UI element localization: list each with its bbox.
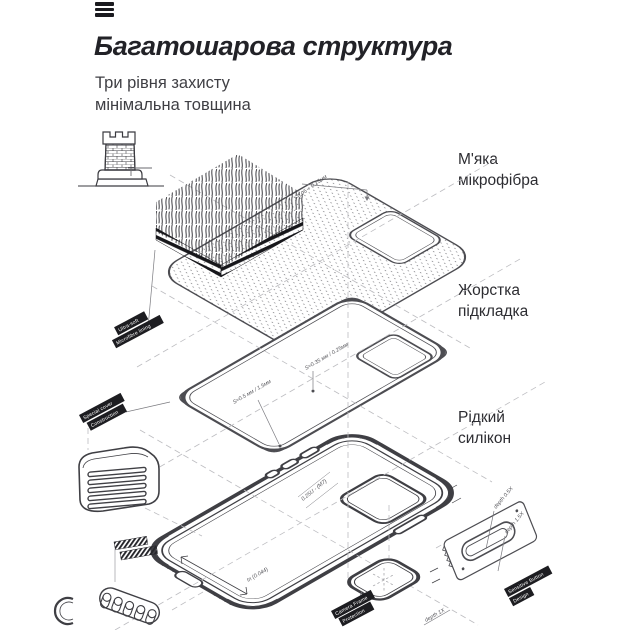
ribbon-camera: Camera Frame Protection — [331, 590, 380, 628]
button-plate-detail — [440, 500, 538, 583]
castle-tower-icon — [78, 132, 164, 186]
corner-bumper-detail — [79, 447, 159, 511]
ribbon-button: Sensitive Button Design — [504, 566, 557, 607]
ring-detail — [55, 598, 73, 624]
ribbon-microfiber: Ultra-soft Microfibre lining — [107, 306, 164, 349]
annotation-depth-c: depth 1X — [424, 607, 446, 623]
camera-frame-detail — [343, 556, 440, 603]
hatched-strips — [114, 535, 158, 561]
exploded-case-diagram: Ultra-soft Microfibre lining Special cov… — [0, 0, 630, 630]
frame-ticks — [430, 568, 440, 583]
ribbon-cover: Special cover Construction — [79, 393, 130, 432]
speaker-bar-detail — [97, 585, 163, 626]
